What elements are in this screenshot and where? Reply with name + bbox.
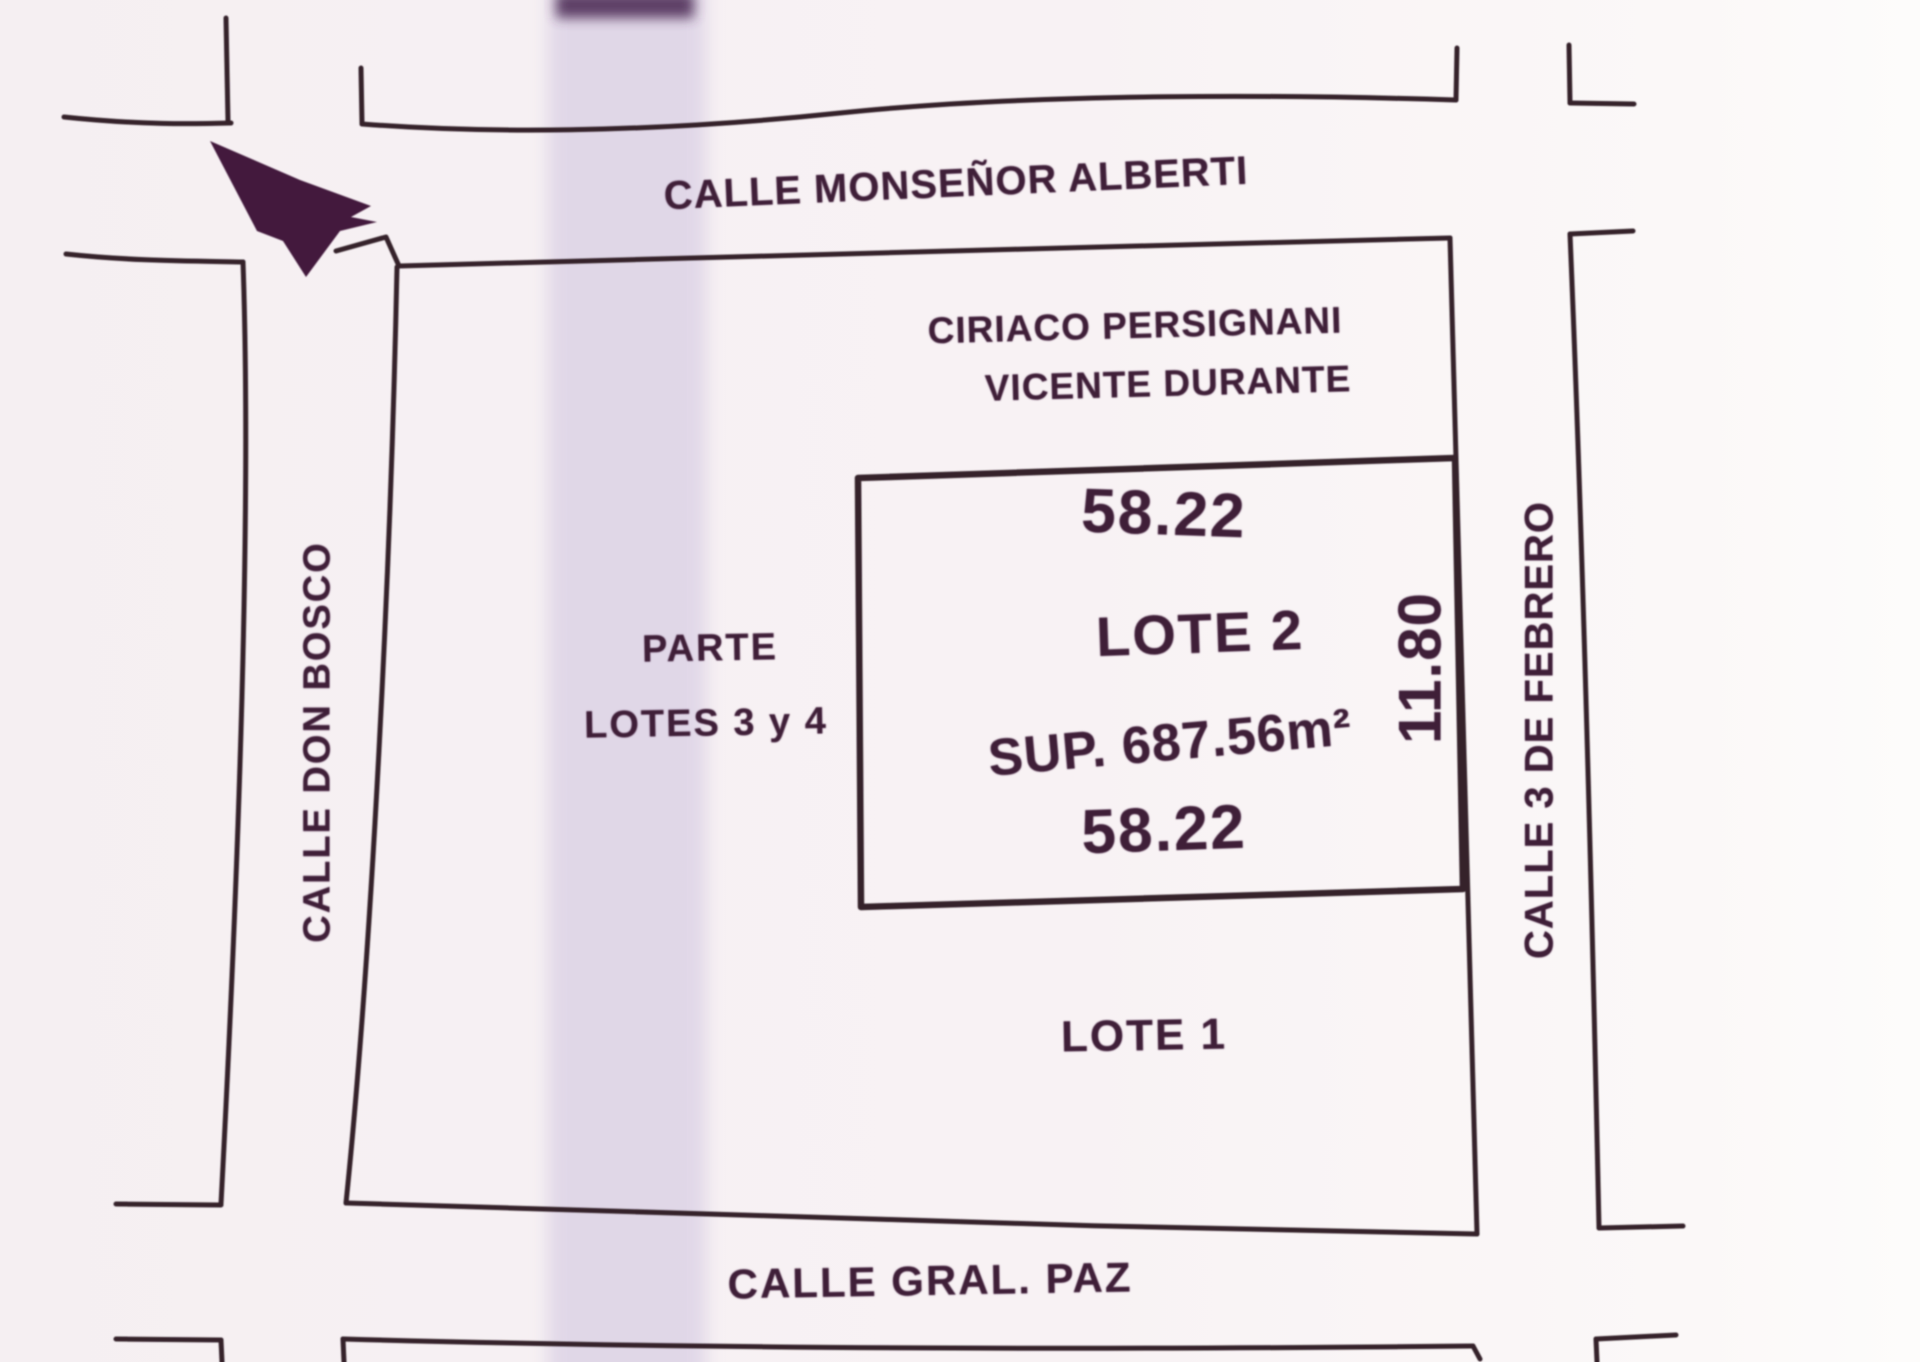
lot2-title: LOTE 2 [1095,597,1305,669]
north-block-tick-right [1456,48,1457,100]
ne-block-south-edge [1570,103,1634,104]
east-block-south-edge [1599,1226,1683,1228]
street-label-south: CALLE GRAL. PAZ [727,1253,1133,1308]
south-block-tick-left [343,1339,344,1362]
main-block-south-edge [346,1203,1477,1234]
parte-lotes-line1: PARTE [642,626,779,671]
nw-block-south-edge [64,117,231,124]
parte-lotes-line2: LOTES 3 y 4 [584,700,828,747]
street-label-west: CALLE DON BOSCO [297,541,340,943]
scan-artifact-band-cap [556,0,694,18]
south-block-north-edge [343,1339,1473,1348]
nw-block-east-edge [226,18,228,122]
sse-block-north-edge [1596,1335,1676,1339]
north-block-south-edge [362,96,1456,130]
street-label-east: CALLE 3 DE FEBRERO [1518,501,1563,959]
east-block-west-edge [1570,234,1599,1228]
north-arrow-icon [210,141,377,277]
north-block-tick-left [361,68,362,124]
lot1-label: LOTE 1 [1061,1010,1228,1063]
ssw-block-north-edge [116,1339,221,1340]
main-block-west-edge [346,267,397,1203]
sw-block-east-edge [221,262,246,1204]
lot2-width-top: 58.22 [1080,476,1248,553]
east-block-north-edge [1570,231,1633,234]
sw-block-south-edge [116,1204,221,1205]
lot2-depth-east: 11.80 [1386,592,1455,744]
south-block-tick-right [1473,1346,1480,1359]
sw-block-north-edge [66,254,243,262]
sse-block-west-edge [1596,1339,1597,1362]
main-block-corner-peak [336,237,399,266]
ne-block-west-edge [1569,45,1570,103]
survey-plan-canvas: CALLE MONSEÑOR ALBERTI CALLE DON BOSCO C… [0,0,1920,1362]
ssw-block-east-edge [221,1340,222,1362]
lot2-width-bottom: 58.22 [1080,792,1248,869]
